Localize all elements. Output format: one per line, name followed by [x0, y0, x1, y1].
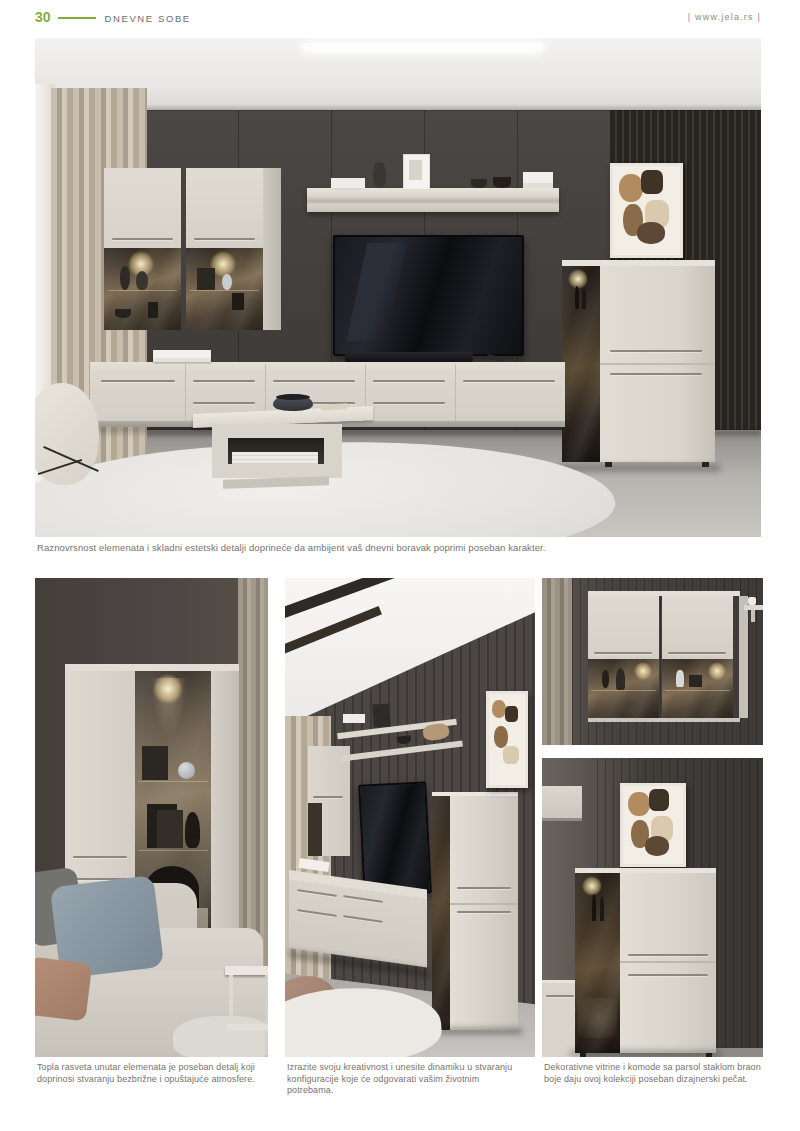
wall-art-frame: [610, 163, 683, 258]
vitrine-light: [582, 876, 602, 896]
wall-art-frame: [486, 691, 528, 788]
highboard-body: [620, 873, 716, 1053]
ceiling-light: [303, 43, 543, 52]
photo-highboard: [542, 758, 763, 1057]
glass-shelf-line: [190, 290, 259, 291]
caption-bottom-middle: Izrazite svoju kreativnost i unesite din…: [287, 1062, 527, 1097]
decor-object: [148, 302, 158, 318]
decor-vase: [136, 271, 148, 290]
glass-shelf-line: [138, 781, 208, 782]
wall-cabinet-door: [186, 168, 263, 248]
decor-bowl: [493, 177, 511, 188]
vitrine-inner-glow: [578, 998, 617, 1038]
decor-books: [142, 746, 168, 780]
glass-shelf-line: [138, 850, 208, 851]
tv-screen: [358, 781, 432, 896]
cabinet-handle: [112, 238, 173, 240]
art-shape: [503, 746, 519, 764]
photo-tv-wall-perspective: [285, 578, 535, 1057]
art-shape: [494, 726, 508, 748]
cabinet-handle: [668, 652, 726, 654]
decor-books: [197, 268, 215, 290]
art-shape: [505, 706, 518, 722]
side-table-leg: [229, 975, 233, 1049]
page-header: 30DNEVNE SOBE | www.jela.rs |: [35, 8, 761, 30]
sideboard-divider: [455, 364, 456, 423]
glass-shelf-line: [665, 690, 730, 691]
art-shape: [628, 792, 650, 816]
shelf-bracket: [751, 610, 755, 622]
side-table-shelf: [227, 1024, 268, 1031]
media-player: [345, 352, 473, 362]
photo-wall-cabinets: [542, 578, 763, 745]
art-shape: [649, 789, 669, 811]
cabinet-divider: [450, 903, 518, 905]
website-url: | www.jela.rs |: [688, 12, 761, 22]
cabinet-bottom: [588, 718, 740, 722]
art-shape: [492, 700, 506, 718]
decor-books: [331, 178, 365, 188]
wall-cabinet-door: [588, 596, 659, 659]
decor-books: [523, 172, 553, 188]
wall-shelf: [307, 188, 559, 212]
side-table-leg: [265, 975, 268, 1055]
glass-shelf-line: [108, 290, 177, 291]
highboard-handle: [628, 974, 708, 976]
vitrine-light: [568, 269, 588, 289]
tall-cabinet-top: [432, 792, 518, 796]
highboard-handle: [628, 954, 708, 956]
decor-vase: [120, 266, 130, 290]
sideboard-handle: [101, 380, 175, 382]
art-shape: [637, 222, 665, 244]
decor-object: [748, 597, 756, 605]
highboard-vitrine: [562, 266, 600, 462]
cabinet-side-panel: [263, 168, 281, 330]
cabinet-underside: [542, 818, 582, 821]
decor-frame: [372, 703, 391, 727]
wall-art-frame: [620, 783, 686, 867]
curtain: [238, 578, 268, 988]
glass-shelf-line: [591, 690, 656, 691]
decor-vase: [373, 162, 386, 188]
cabinet-handle: [594, 652, 652, 654]
caption-bottom-left: Topla rasveta unutar elemenata je poseba…: [37, 1062, 269, 1085]
sideboard-handle: [193, 380, 255, 382]
page-number: 30: [35, 9, 51, 25]
sideboard-handle: [463, 380, 555, 382]
cabinet-handle: [457, 911, 511, 913]
decor-vase: [222, 274, 232, 290]
cabinet-handle: [73, 856, 127, 858]
decor-bowl: [471, 179, 487, 188]
highboard-shadow: [570, 1051, 720, 1056]
decor-frame: [689, 675, 702, 687]
vitrine-light: [634, 662, 652, 680]
sideboard-handle: [193, 402, 255, 404]
highboard-handle: [610, 373, 702, 375]
section-title: DNEVNE SOBE: [105, 13, 191, 24]
art-shape: [619, 174, 643, 202]
cabinet-handle: [313, 796, 343, 798]
cabinet-handle: [546, 995, 574, 997]
side-table-top: [225, 966, 268, 975]
decor-sphere: [178, 762, 195, 779]
art-shape: [641, 170, 663, 194]
cabinet-shadow: [430, 1028, 522, 1034]
decor-bowl-rim: [276, 394, 310, 400]
decor-frame: [157, 810, 183, 848]
pillow-salmon: [35, 956, 92, 1021]
decor-books: [343, 714, 365, 723]
wall-cabinet-door: [104, 168, 181, 248]
main-photo: [35, 38, 761, 537]
decor-object: [616, 668, 625, 690]
highboard-divider: [620, 961, 716, 963]
tall-cabinet-vitrine: [432, 795, 450, 1030]
wall-cabinet-vitrine: [308, 803, 322, 856]
rug: [173, 1016, 268, 1057]
caption-bottom-right: Dekorativne vitrine i komode sa parsol s…: [544, 1062, 766, 1085]
decor-bowl: [115, 309, 131, 318]
header-divider-line: [58, 17, 96, 19]
decor-bottle: [676, 670, 684, 687]
art-shape: [645, 836, 669, 856]
cabinet-side-panel: [739, 596, 748, 718]
highboard-divider: [600, 363, 715, 365]
curtain: [542, 578, 572, 745]
decor-vase: [185, 812, 200, 848]
highboard-handle: [610, 350, 702, 352]
decor-figurine: [575, 286, 579, 309]
decor-books: [232, 452, 318, 464]
sideboard-handle: [373, 380, 445, 382]
cabinet-handle: [457, 887, 511, 889]
photo-vitrine-sofa: [35, 578, 268, 1057]
decor-figurine: [582, 288, 586, 309]
cabinet-top: [65, 664, 239, 671]
decor-figurine: [600, 897, 604, 921]
wall-cabinet-door: [662, 596, 733, 659]
main-caption: Raznovrsnost elemenata i skladni estetsk…: [37, 542, 757, 554]
highboard-shadow: [560, 465, 720, 471]
decor-frame: [232, 293, 244, 310]
decor-vase: [602, 670, 609, 688]
decor-books: [153, 350, 211, 362]
catalog-page: 30DNEVNE SOBE | www.jela.rs |: [0, 0, 800, 1131]
cabinet-handle: [194, 238, 255, 240]
sideboard-divider: [185, 364, 186, 423]
decor-picture-sketch: [409, 160, 422, 180]
sideboard-handle: [273, 380, 355, 382]
vitrine-light: [708, 662, 726, 680]
light-beam: [151, 678, 187, 738]
sideboard-handle: [373, 402, 445, 404]
decor-figurine: [592, 894, 596, 921]
wall-cabinet-fragment: [542, 786, 582, 820]
